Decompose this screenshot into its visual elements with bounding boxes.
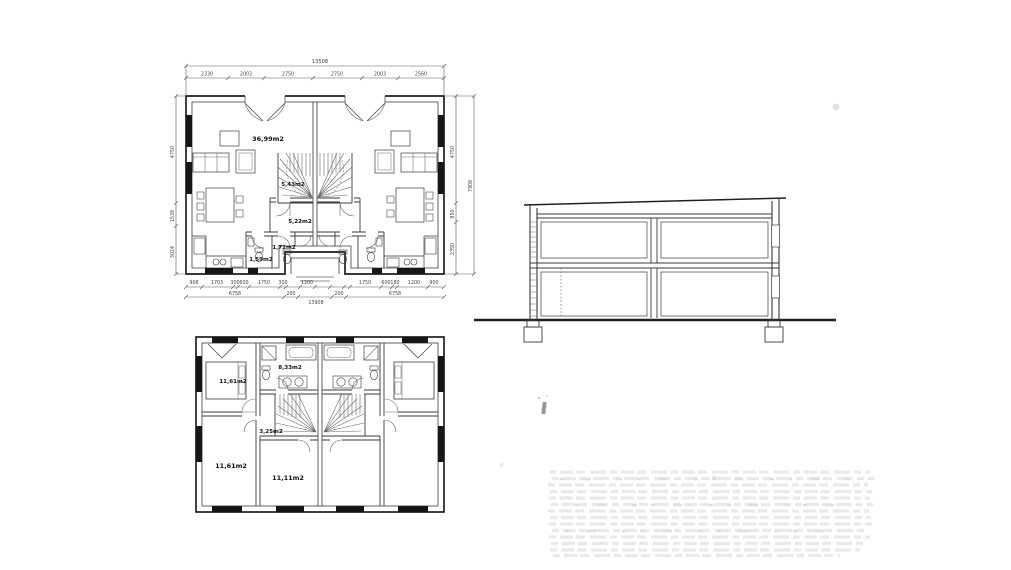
dim-bottom2-seg: 6758 (389, 291, 401, 297)
faint-speck (500, 463, 503, 467)
dim-bottom-seg: 300 (230, 280, 239, 286)
building-section (474, 198, 836, 342)
window-icon (205, 268, 233, 274)
dim-right-seg: 4750 (450, 146, 456, 158)
room-lower-left (541, 272, 647, 316)
floor-slab (530, 263, 779, 268)
corner-wardrobe (208, 344, 236, 358)
dim-right-seg: 2350 (450, 243, 456, 255)
dimension-left: 4750 1538 3024 (170, 94, 186, 276)
dim-right-seg: 850 (450, 209, 456, 218)
staircase (278, 153, 313, 203)
room-label-living: 36,99m2 (252, 135, 284, 143)
room-label-storage: 1,59m2 (249, 257, 273, 263)
door-opening (245, 95, 285, 103)
door-swing-arc (245, 103, 285, 121)
room-label-bedroom-top: 11,61m2 (219, 379, 247, 385)
dwelling-unit-geometry (196, 337, 318, 512)
dim-bottom-seg: 908 (189, 280, 198, 286)
foundation-footings (524, 320, 783, 342)
dim-bottom-seg: 1200 (301, 280, 313, 286)
dim-left-seg: 1538 (170, 210, 176, 222)
room-upper-right (661, 222, 768, 258)
dim-bottom-seg: 1703 (211, 280, 223, 286)
toilet-icon (262, 366, 270, 380)
dimension-bottom: 908 1703 300 600 1750 300 1200 1750 600 … (184, 280, 446, 306)
room-label-bedroom-bottom: 11,61m2 (215, 462, 247, 470)
window-marks (196, 337, 304, 512)
hall-door-arc (276, 202, 290, 216)
stove-icon (231, 258, 243, 267)
roof-line (524, 198, 786, 205)
room-label-stairs: 5,43m2 (281, 182, 305, 188)
mirrored-unit (322, 337, 444, 512)
dim-bottom-seg: 600 (381, 280, 390, 286)
coffee-table (220, 131, 239, 146)
scan-artifacts (500, 104, 874, 556)
dim-top-seg: 2003 (374, 72, 386, 78)
dim-right-total: 7908 (468, 180, 474, 192)
washing-machine (262, 346, 276, 360)
dim-bottom2-seg: 200 (286, 291, 295, 297)
dim-bottom2-seg: 6758 (229, 291, 241, 297)
room-label-hall: 3,25m2 (259, 429, 283, 435)
blueprint-page: 36,99m2 5,43m2 5,22m2 1,72m2 1,59m2 1350… (0, 0, 1011, 570)
dim-bottom-seg: 300 (278, 280, 287, 286)
dim-bottom2-seg: 200 (334, 291, 343, 297)
dim-top-seg: 2560 (415, 72, 427, 78)
dim-top-seg: 2750 (331, 72, 343, 78)
exterior-walls (196, 337, 444, 512)
faint-blot (833, 104, 840, 111)
wall-hatch (530, 222, 537, 316)
dim-bottom-seg: 1750 (359, 280, 371, 286)
hand-basin (248, 238, 254, 246)
outer-wall-line (196, 337, 444, 512)
dim-bottom-seg: 1200 (408, 280, 420, 286)
room-label-wc: 1,72m2 (272, 245, 296, 251)
upper-floor-plan: 36,99m2 5,43m2 5,22m2 1,72m2 1,59m2 1350… (170, 59, 476, 306)
room-lower-right (661, 272, 768, 316)
dim-bottom-seg: 180 (390, 280, 399, 286)
sink-icon (213, 259, 219, 265)
room-label-hall: 5,22m2 (288, 219, 312, 225)
sink-icon (220, 259, 226, 265)
room-upper-left (541, 222, 647, 258)
lower-floor-plan: 11,61m2 8,33m2 3,25m2 11,61m2 11,11m2 (196, 337, 444, 512)
ink-smudge (538, 395, 548, 414)
dim-bottom-seg: 900 (429, 280, 438, 286)
dim-left-seg: 3024 (170, 246, 176, 258)
dining-table (197, 188, 243, 222)
outer-wall-line (186, 96, 444, 274)
window-icon (186, 115, 192, 147)
window-icon (248, 268, 258, 274)
dimension-top: 13508 2330 2003 2750 2750 2003 2560 (184, 59, 446, 96)
dim-bottom-seg: 600 (239, 280, 248, 286)
mirrored-unit (317, 95, 444, 274)
exterior-walls (186, 96, 444, 281)
dim-bottom-seg: 1750 (258, 280, 270, 286)
drawing-canvas: 36,99m2 5,43m2 5,22m2 1,72m2 1,59m2 1350… (0, 0, 1011, 570)
kitchen-counter (192, 236, 246, 268)
section-walls (530, 198, 779, 320)
room-label-bedroom-mid: 11,11m2 (272, 474, 304, 482)
dim-top-seg: 2750 (282, 72, 294, 78)
party-wall (313, 102, 317, 246)
dim-top-total: 13508 (312, 59, 329, 65)
dim-top-seg: 2003 (240, 72, 252, 78)
dim-left-seg: 4750 (170, 146, 176, 158)
ceiling-slab (537, 214, 772, 218)
window-icon (186, 162, 192, 194)
inner-wall-line (202, 343, 438, 506)
porch-walls (291, 258, 339, 274)
party-wall (318, 343, 322, 506)
bathtub (286, 345, 316, 360)
fixtures (206, 344, 316, 399)
window-in-wall (772, 225, 780, 298)
inner-wall-line (192, 102, 438, 268)
dimension-right: 4750 850 2350 7908 (444, 94, 476, 276)
double-washbasin (279, 376, 307, 388)
sofa (193, 150, 255, 173)
dim-top-seg: 2330 (201, 72, 213, 78)
dim-bottom2-seg: 13908 (308, 300, 323, 306)
terrace-door (245, 95, 285, 121)
room-label-bathroom: 8,33m2 (278, 365, 302, 371)
ghost-text-block (548, 472, 874, 556)
